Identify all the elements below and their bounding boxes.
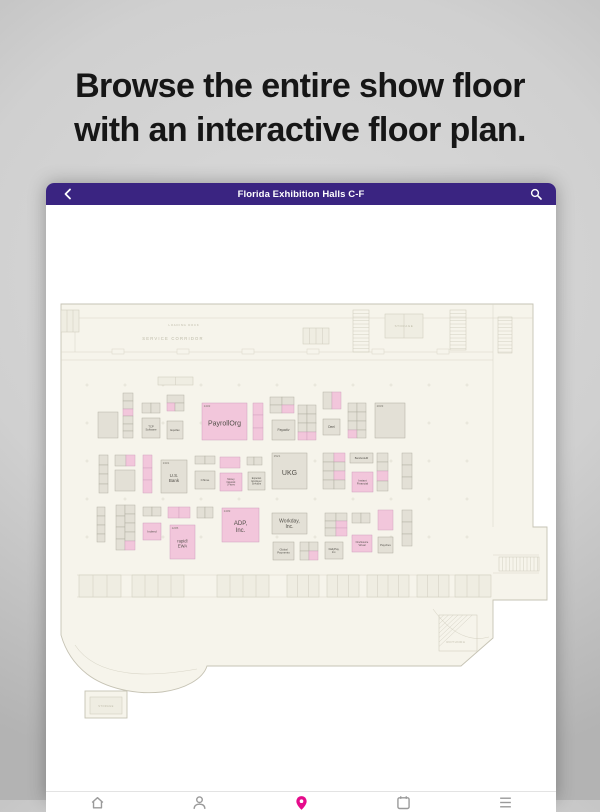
booth-global-payments[interactable]: GlobalPayments: [273, 542, 294, 560]
svg-text:LOADING DOCK: LOADING DOCK: [168, 323, 199, 327]
svg-text:2033: 2033: [377, 404, 384, 408]
booth-indeed[interactable]: Indeed: [143, 523, 161, 540]
headline-line-1: Browse the entire show floor: [0, 64, 600, 108]
booth-rapid-ewa[interactable]: 1205rapid!EWA: [170, 525, 195, 559]
svg-text:Payactiv: Payactiv: [277, 428, 289, 432]
svg-text:Virtual: Virtual: [358, 544, 365, 547]
svg-text:STORAGE: STORAGE: [395, 324, 414, 328]
svg-text:1432: 1432: [204, 404, 211, 408]
svg-text:1521: 1521: [274, 454, 281, 458]
floor-plan-map[interactable]: LOADING DOCKSERVICE CORRIDORSTORAGEROTUN…: [57, 297, 549, 721]
svg-text:PayrollOrg: PayrollOrg: [208, 420, 241, 427]
svg-text:Payments: Payments: [277, 551, 290, 555]
svg-text:1205: 1205: [172, 526, 179, 530]
nav-more[interactable]: [475, 792, 535, 810]
nav-map-pin[interactable]: [271, 792, 331, 810]
booth-paychex[interactable]: Paychex: [378, 537, 393, 553]
bottom-nav: [46, 791, 556, 812]
app-screenshot: Florida Exhibition Halls C-F LOADING DOC…: [46, 183, 556, 800]
booth-instant-financial[interactable]: InstantFinancial: [352, 472, 373, 492]
headline-line-2: with an interactive floor plan.: [0, 108, 600, 152]
svg-text:| Fiserv: | Fiserv: [227, 484, 236, 487]
booth-adp-inc[interactable]: 1409ADP,Inc.: [222, 508, 259, 542]
svg-text:STORAGE: STORAGE: [98, 704, 113, 708]
svg-text:ROTUNDA: ROTUNDA: [446, 640, 465, 644]
svg-text:1331: 1331: [163, 461, 170, 465]
svg-text:SERVICE CORRIDOR: SERVICE CORRIDOR: [142, 336, 203, 341]
nav-home[interactable]: [67, 792, 127, 810]
booth-equifax[interactable]: Equifax: [167, 421, 183, 439]
marketing-headline: Browse the entire show floor with an int…: [0, 64, 600, 152]
svg-text:Paychex: Paychex: [380, 543, 391, 547]
booth-onesource-virtual[interactable]: OneSourceVirtual: [352, 535, 372, 552]
svg-text:EWA: EWA: [178, 543, 188, 548]
nav-schedule[interactable]: [373, 792, 433, 810]
svg-text:Inc.: Inc.: [236, 528, 246, 534]
search-icon[interactable]: [530, 188, 542, 200]
svg-text:BambooHR: BambooHR: [355, 456, 369, 460]
svg-text:UKG: UKG: [282, 470, 297, 477]
svg-text:Equifax: Equifax: [170, 428, 180, 432]
page-title: Florida Exhibition Halls C-F: [46, 183, 556, 205]
booth-workday-inc[interactable]: Workday,Inc.: [272, 513, 307, 534]
booth-money-network-fiserv[interactable]: MoneyNetwork| Fiserv: [220, 473, 242, 491]
nav-profile[interactable]: [169, 792, 229, 810]
svg-text:Deel: Deel: [328, 425, 335, 429]
app-header: Florida Exhibition Halls C-F: [46, 183, 556, 205]
svg-text:Indeed: Indeed: [147, 530, 157, 534]
svg-text:Chime: Chime: [201, 478, 210, 482]
svg-text:Bank: Bank: [169, 478, 180, 483]
svg-text:ADP,: ADP,: [234, 521, 248, 527]
booth-dailypay-inc[interactable]: DailyPay,Inc.: [325, 542, 343, 559]
svg-text:1409: 1409: [224, 509, 231, 513]
booth-u-s-bank[interactable]: 1331U.S.Bank: [161, 460, 187, 493]
booth-tcp-software[interactable]: TCPSoftware: [142, 418, 160, 438]
svg-text:Services: Services: [252, 483, 262, 486]
booth-payactiv[interactable]: Payactiv: [272, 420, 295, 440]
booth-booth-2033[interactable]: 2033: [375, 403, 405, 438]
booth-payrollorg[interactable]: 1432PayrollOrg: [202, 403, 247, 440]
svg-text:Financial: Financial: [357, 482, 369, 486]
booth-deel[interactable]: Deel: [323, 419, 340, 435]
booth-chime[interactable]: Chime: [195, 471, 215, 489]
booth-experian-employer-services[interactable]: ExperianEmployerServices: [248, 472, 265, 490]
booth-ukg[interactable]: 1521UKG: [272, 453, 307, 489]
booth-bamboohr[interactable]: BambooHR: [350, 453, 373, 463]
svg-text:Inc.: Inc.: [332, 550, 336, 554]
svg-text:Software: Software: [145, 428, 156, 432]
svg-text:Inc.: Inc.: [285, 524, 293, 530]
